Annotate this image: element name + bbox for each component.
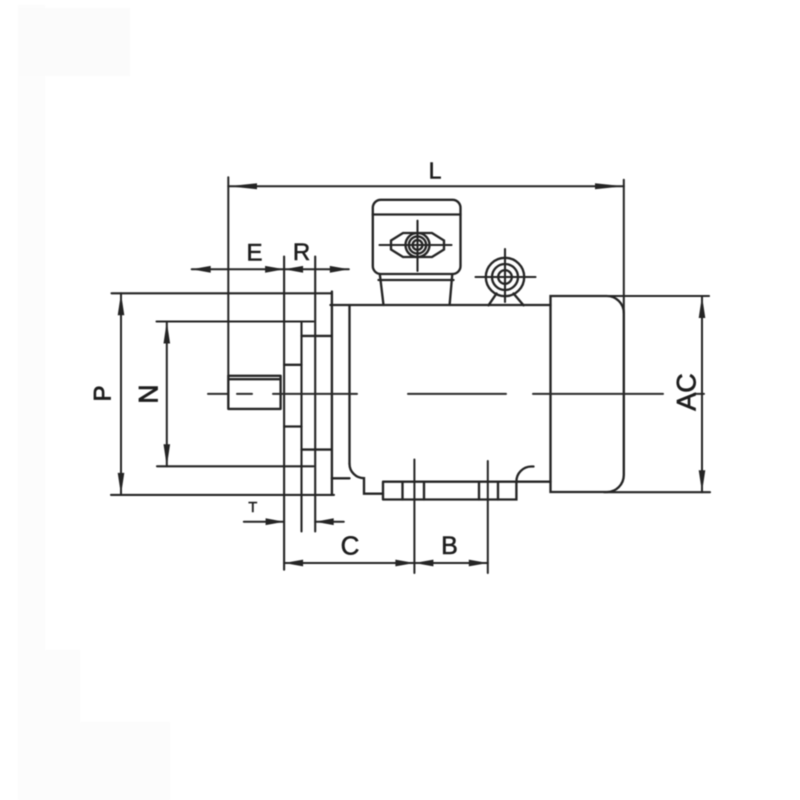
svg-text:N: N bbox=[134, 384, 164, 403]
svg-text:T: T bbox=[248, 500, 257, 516]
svg-text:AC: AC bbox=[672, 373, 702, 411]
svg-text:L: L bbox=[429, 158, 442, 184]
svg-text:E: E bbox=[246, 240, 262, 267]
svg-text:P: P bbox=[89, 385, 116, 401]
svg-text:B: B bbox=[441, 532, 458, 560]
svg-text:R: R bbox=[293, 239, 310, 266]
svg-text:C: C bbox=[341, 531, 360, 561]
